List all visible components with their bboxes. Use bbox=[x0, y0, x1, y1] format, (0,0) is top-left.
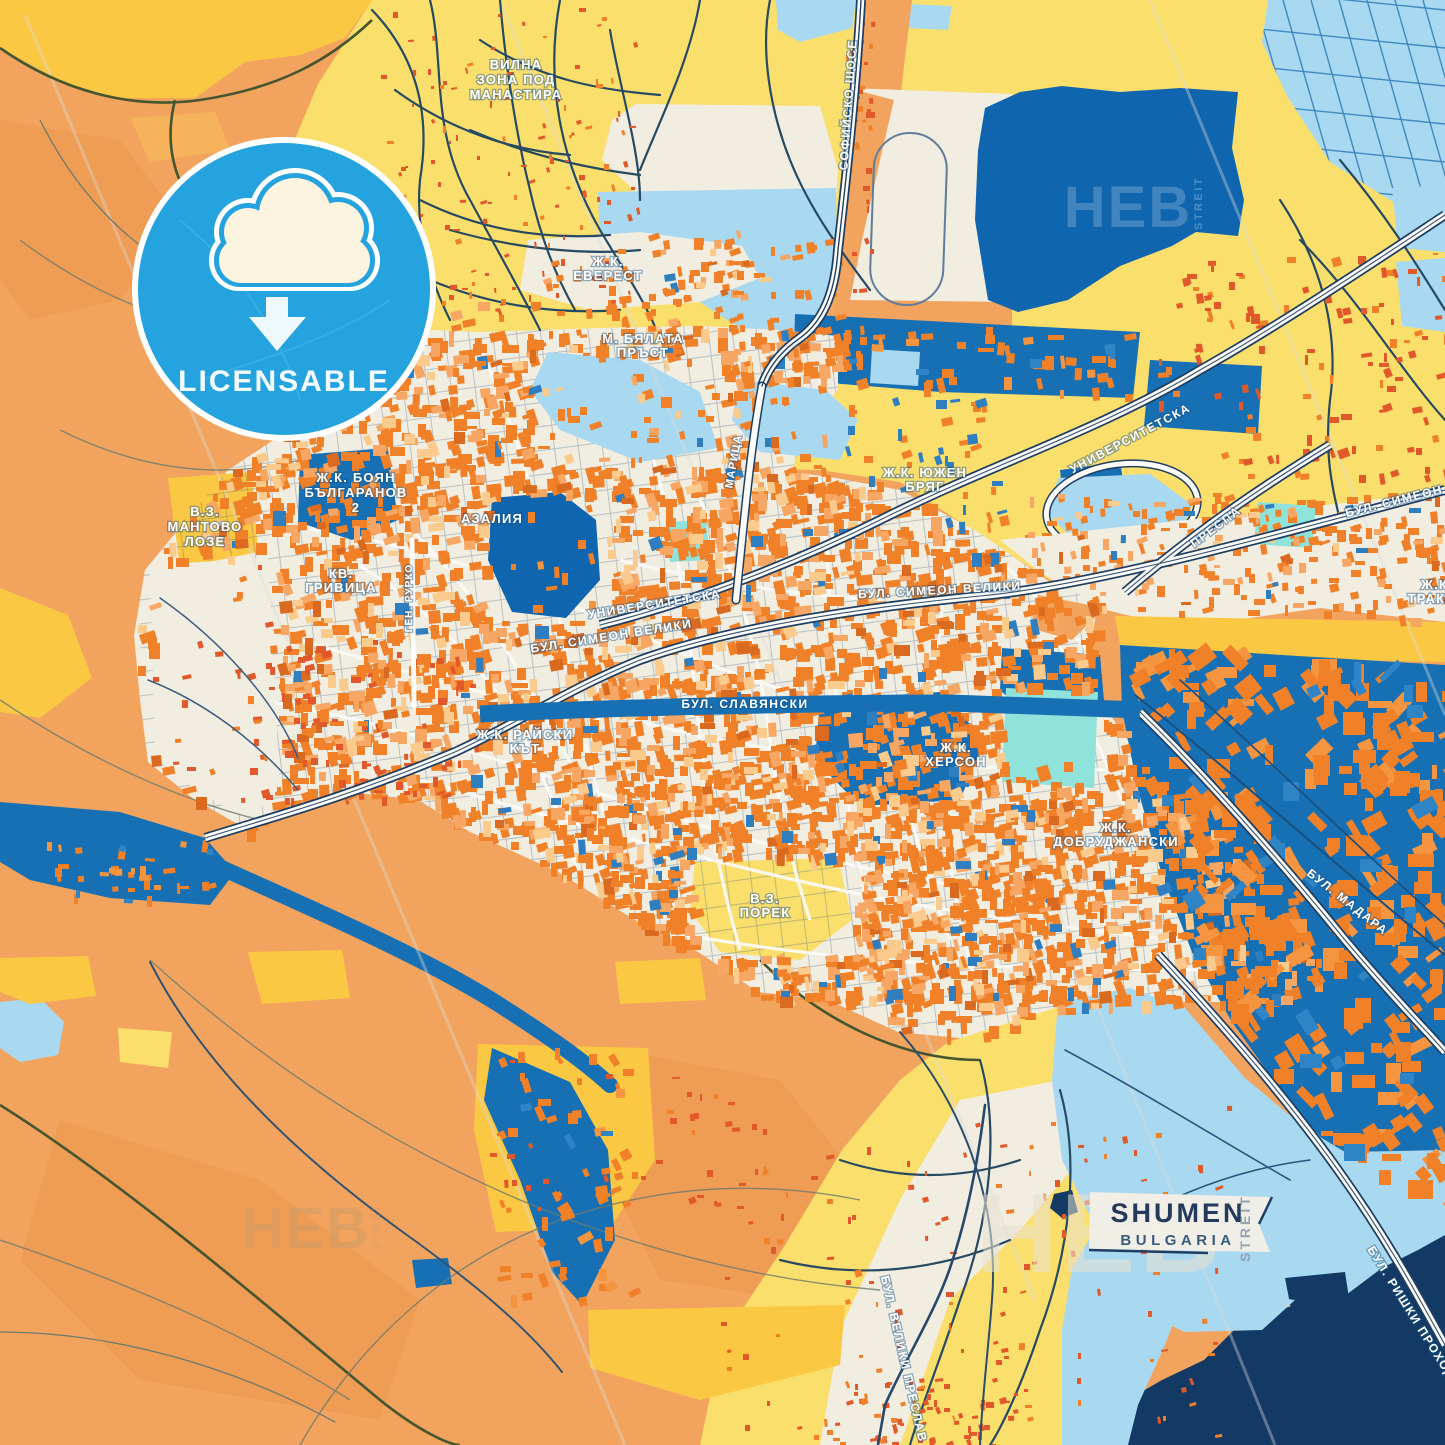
svg-text:STREIT: STREIT bbox=[1193, 176, 1205, 230]
svg-text:HEB: HEB bbox=[1064, 175, 1192, 240]
